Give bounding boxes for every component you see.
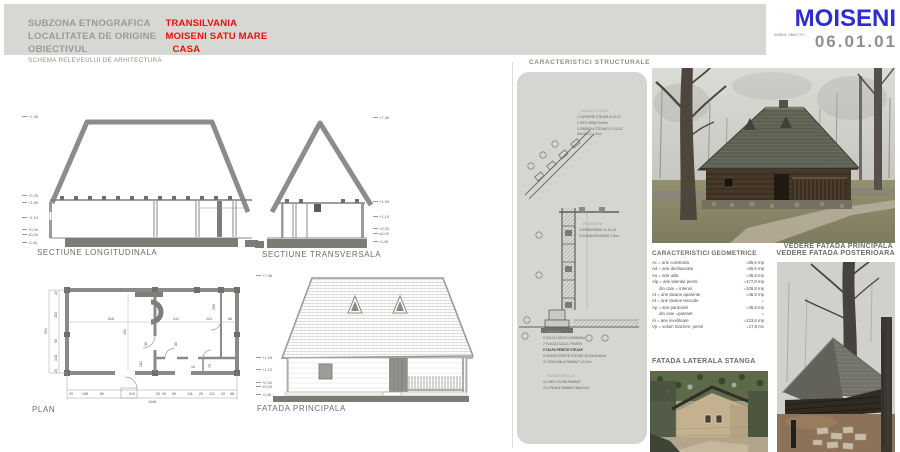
svg-text:90: 90: [172, 392, 176, 396]
drawing-sectiune-longitudinala: +7,36 +2,25 +1,95 +1,10 +0,30 ±0,00 -0,4…: [20, 100, 265, 265]
svg-text:102: 102: [139, 361, 143, 367]
svg-text:491: 491: [123, 329, 127, 335]
wood-post: [791, 420, 796, 448]
svg-text:20: 20: [69, 392, 73, 396]
logo-title: MOISENI: [795, 5, 896, 33]
small-window: [724, 178, 733, 187]
photo-posterioara-svg: [777, 262, 895, 452]
caption-vedere-fatada-posterioara: VEDERE FATADA POSTERIOARA: [770, 250, 895, 257]
svg-text:20: 20: [221, 392, 225, 396]
elev-label: +1,10: [22, 216, 38, 220]
elev-label: +1,10: [256, 368, 272, 372]
svg-text:111: 111: [187, 392, 192, 396]
elev-label: +7,36: [22, 115, 38, 119]
rafter-detail: [525, 130, 594, 199]
porch: [792, 178, 847, 202]
title-sectiune-transversala: SECTIUNE TRANSVERSALA: [262, 250, 381, 259]
svg-text:283: 283: [54, 312, 58, 318]
ground-bar: [273, 396, 469, 402]
svg-text:396: 396: [212, 304, 216, 310]
plinth: [285, 392, 467, 396]
record-sheet: SUBZONA ETNOGRAFICA TRANSILVANIA LOCALIT…: [0, 0, 900, 452]
pardoseala-heading: PARDOSEALA: [547, 374, 575, 378]
svg-text:531: 531: [44, 328, 48, 334]
invelitoare-item: 3 SINDRILA STEJAR CU SCOC: [577, 128, 623, 131]
invelitoare-item: 80x10x1,2-1,5cm: [577, 133, 601, 136]
elev-label: +1,95: [22, 201, 38, 205]
photo-fatada-principala: [652, 68, 895, 243]
pereti-item: 6 SOCLU VECHI CARAMIDA: [543, 337, 585, 340]
caption-fatada-laterala-stanga: FATADA LATERALA STANGA: [652, 358, 756, 365]
header-row-obiectiv: OBIECTIVUL CASA: [28, 39, 200, 57]
geometric-title: CARACTERISTICI GEOMETRICE: [652, 250, 757, 257]
geometric-rows: Ac = arie construita=55,6 mp Ad = arie d…: [652, 260, 764, 330]
pereti-heading: PERETI: [547, 330, 562, 334]
pereti-item: 10 TENCUIALA PAMANT 1,5-2cm: [543, 361, 592, 364]
obiectiv-label: OBIECTIVUL: [28, 44, 161, 55]
svg-text:241: 241: [173, 317, 179, 321]
chimney-block: [314, 204, 321, 212]
elev-label: -0,45: [256, 393, 271, 397]
geo-row: Vp = volum mat.lem. pereti=17,8 mc: [652, 324, 764, 330]
pereti-item: 9 GRINZI PERETE STEJAR 15-20x40-60cm: [543, 355, 606, 358]
front-elevation-svg: [255, 268, 480, 408]
svg-text:20: 20: [156, 392, 160, 396]
title-plan: PLAN: [32, 405, 55, 414]
window-right: [716, 415, 722, 423]
elev-label: ±0,00: [256, 385, 272, 389]
pardoseala-item: 11 UMPLUTURA PAMANT: [543, 381, 581, 384]
svg-text:68: 68: [228, 317, 232, 321]
posts-and-walls: [49, 201, 248, 238]
svg-text:121: 121: [209, 392, 215, 396]
svg-text:90: 90: [144, 342, 148, 346]
svg-text:75: 75: [208, 364, 212, 368]
svg-text:68: 68: [230, 392, 234, 396]
logo-symbol-label: SIMBOL OBIECTIV: [774, 33, 804, 37]
svg-text:518: 518: [108, 317, 114, 321]
transversal-section-svg: [255, 100, 435, 265]
planseu-item: 4 GRINZI BRAD 12-14-16: [579, 229, 616, 232]
drawing-plan: 20 148 60 310 20 40 90 111 20 121 20 68 …: [25, 280, 255, 415]
structural-title: CARACTERISTICI STRUCTURALE: [529, 59, 650, 66]
elev-label: -0,45: [373, 240, 388, 244]
svg-text:60: 60: [54, 339, 58, 343]
door: [389, 358, 407, 392]
elev-label: +1,95: [373, 200, 389, 204]
svg-text:148: 148: [54, 355, 58, 361]
title-fatada-principala: FATADA PRINCIPALA: [257, 404, 346, 413]
svg-text:20: 20: [54, 369, 58, 373]
title-sectiune-longitudinala: SECTIUNE LONGITUDINALA: [37, 248, 157, 257]
svg-text:148: 148: [82, 392, 88, 396]
roof: [282, 278, 473, 358]
right-bushes: [748, 391, 768, 443]
plan-svg: 20 148 60 310 20 40 90 111 20 121 20 68 …: [25, 280, 255, 415]
shingle-inset: [595, 170, 635, 222]
roof-outline: [272, 123, 371, 212]
photo-laterala-svg: [650, 371, 768, 452]
logo-box: MOISENI SIMBOL OBIECTIV 06.01.01: [766, 0, 900, 58]
invelitoare-item: 1 CAPRIORI STEJAR Ø 10-12: [577, 116, 621, 119]
elev-label: +1,95: [256, 356, 272, 360]
stone-foundation: [702, 200, 852, 209]
elev-label: +2,25: [22, 194, 38, 198]
right-tree-trunk: [881, 317, 892, 452]
planseu-item: 5 SCANDURA BRAD 2,5cm: [579, 235, 619, 238]
pardoseala-item: 12 LIPEALA PAMANT+BALEGA: [543, 387, 589, 390]
invelitoare-heading: INVELITOARE: [581, 109, 609, 113]
window: [319, 364, 332, 379]
object-code: 06.01.01: [815, 32, 897, 52]
elev-label: ±0,00: [373, 232, 389, 236]
pereti-item: 7 PLACAJ SOCLU PIATRA: [543, 343, 582, 346]
svg-text:40: 40: [162, 392, 166, 396]
caption-vedere-fatada-principala: VEDERE FATADA PRINCIPALA: [652, 243, 893, 250]
foundation-bar: [255, 239, 367, 248]
svg-text:1048: 1048: [148, 400, 156, 404]
elev-label: ±0,00: [22, 233, 38, 237]
planseu-heading: PLANSEU: [583, 222, 603, 226]
pereti-item: 8 TALPA PERETE STEJAR: [543, 349, 583, 352]
sheet-subtitle: SCHEMA RELEVEULUI DE ARHITECTURA: [28, 57, 162, 64]
door-opening: [774, 174, 789, 202]
obiectiv-value: CASA: [165, 44, 200, 55]
walls: [281, 204, 364, 238]
svg-text:10: 10: [191, 365, 195, 369]
svg-text:310: 310: [129, 392, 135, 396]
elev-label: +1,10: [373, 215, 389, 219]
ridge-vent: [779, 100, 788, 108]
drawing-sectiune-transversala: +7,36 +1,95 +1,10 +0,30 ±0,00 -0,45: [255, 100, 435, 265]
svg-text:121: 121: [206, 317, 212, 321]
elev-label: -0,45: [22, 241, 37, 245]
window-left: [705, 415, 711, 423]
photo-principala-svg: [652, 68, 895, 243]
photo-fatada-laterala: [650, 371, 768, 452]
drawing-fatada-principala: +7,36 +1,95 +1,10 +0,30 ±0,00 -0,45: [255, 268, 480, 408]
svg-text:60: 60: [100, 392, 104, 396]
svg-text:80: 80: [174, 342, 178, 346]
elev-label: +7,36: [256, 274, 272, 278]
roof-outline: [52, 122, 248, 212]
column-divider: [512, 62, 513, 448]
photo-fatada-posterioara: [777, 262, 895, 452]
wall-section: [524, 207, 619, 323]
svg-text:20: 20: [199, 392, 203, 396]
elev-label: +7,36: [373, 116, 389, 120]
dims-left: 20 283 60 148 20 531: [44, 291, 58, 373]
wall: [287, 358, 467, 392]
svg-text:20: 20: [54, 291, 58, 295]
door-step: [383, 392, 401, 396]
invelitoare-item: 2 SIPCI BRAD 5x3cm: [577, 122, 608, 125]
foundation-bar: [65, 238, 258, 247]
longitudinal-section-svg: [20, 100, 265, 265]
